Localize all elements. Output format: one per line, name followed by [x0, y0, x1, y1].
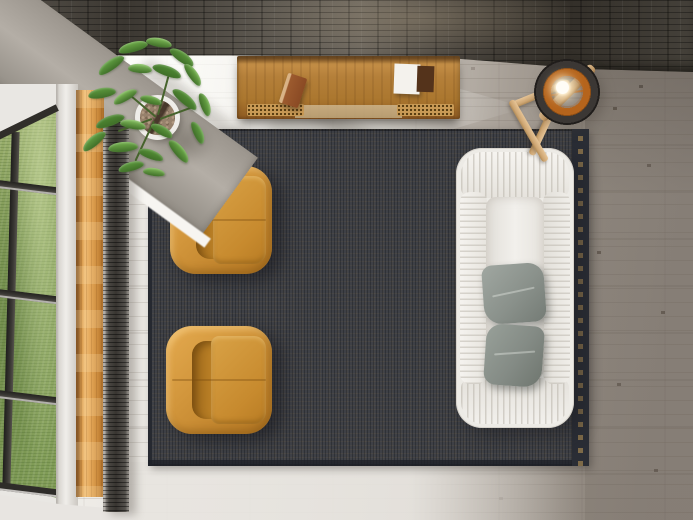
wood-sideboard: [237, 56, 460, 119]
lamp-bulb: [556, 81, 569, 94]
pillow-crease: [492, 286, 535, 297]
rug-bottom-trim: [148, 460, 589, 466]
brown-book: [279, 73, 308, 109]
armchair-seam: [172, 379, 266, 381]
wall-light-sheen: [230, 0, 570, 60]
gray-pillow-top: [481, 262, 547, 325]
wood-window-trim: [76, 90, 104, 497]
rug-right-border: [572, 129, 589, 466]
sideboard-base-panel: [295, 105, 402, 118]
pillow-crease: [494, 351, 535, 356]
window-frame-white: [56, 84, 78, 520]
sideboard-vent-right: [397, 104, 454, 116]
dark-case: [417, 66, 435, 93]
radiator: [103, 122, 129, 512]
floor-shadow-right: [585, 58, 693, 520]
floor-bottom-highlight: [128, 462, 693, 520]
sofa-edge-right: [543, 192, 570, 384]
leather-armchair-bottom: [166, 326, 272, 434]
gray-pillow-bottom: [483, 323, 545, 388]
window: [0, 84, 78, 520]
living-room-photo: Top-down view of a modern living room: a…: [0, 0, 693, 520]
white-sofa: [456, 148, 574, 428]
